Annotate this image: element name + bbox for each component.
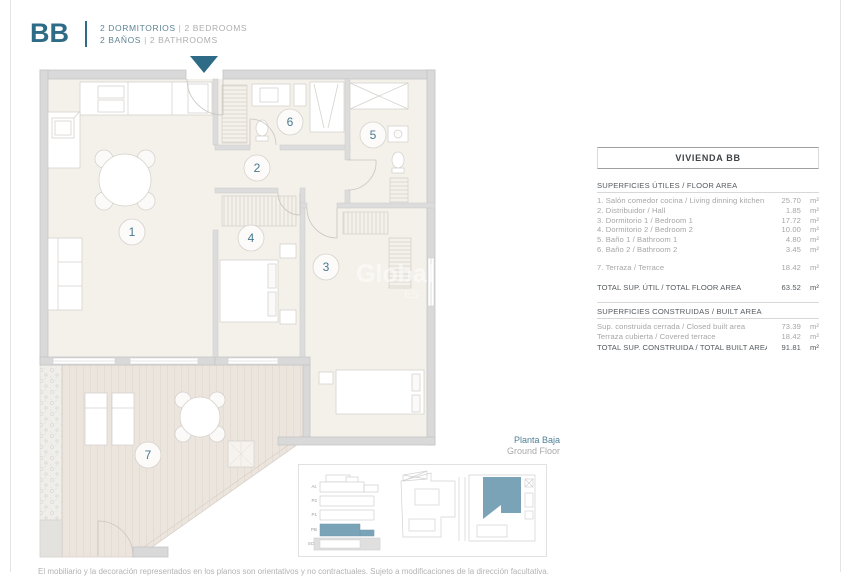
unit-code: BB — [30, 18, 69, 49]
dining-table — [95, 150, 155, 210]
toilet — [392, 152, 404, 168]
table-row: 1. Salón comedor cocina / Living dinning… — [597, 196, 819, 206]
svg-text:P2: P2 — [311, 498, 317, 503]
highlighted-level — [320, 524, 374, 536]
terrace-shrub — [228, 441, 254, 467]
bedroom1-wardrobe-top — [343, 212, 388, 234]
room-circle-6: 6 — [277, 109, 303, 135]
svg-text:2: 2 — [254, 161, 261, 175]
page-border-left — [10, 0, 11, 572]
site-plan-diagram — [397, 467, 541, 551]
floor-label: Planta Baja Ground Floor — [420, 435, 560, 457]
bathrooms-line: 2 BAÑOS|2 BATHROOMS — [100, 34, 247, 46]
kitchen-sink — [48, 111, 80, 168]
entrance-arrow-icon — [190, 56, 218, 73]
section-slabs — [320, 475, 378, 520]
bedroom2-wardrobe — [222, 196, 296, 226]
table-row: Sup. construida cerrada / Closed built a… — [597, 322, 819, 332]
svg-text:4: 4 — [248, 231, 255, 245]
watermark-text: Global — [356, 260, 434, 288]
room-circle-3: 3 — [313, 254, 339, 280]
section-header: SUPERFICIES ÚTILES / FLOOR AREA — [597, 181, 819, 193]
table-row: 2. Distribuidor / Hall1.85m² — [597, 206, 819, 216]
page-border-right — [840, 0, 841, 572]
header: BB 2 DORMITORIOS|2 BEDROOMS 2 BAÑOS|2 BA… — [30, 18, 247, 49]
svg-text:5: 5 — [370, 128, 377, 142]
svg-text:1: 1 — [129, 225, 136, 239]
building-section-diagram: At. P2 P1 PB SOT — [304, 467, 394, 553]
bedrooms-line: 2 DORMITORIOS|2 BEDROOMS — [100, 22, 247, 34]
header-divider — [85, 21, 87, 47]
table-row: 5. Baño 1 / Bathroom 14.80m² — [597, 235, 819, 245]
toilet — [256, 120, 268, 136]
svg-text:PB: PB — [311, 527, 317, 532]
built-area-section: SUPERFICIES CONSTRUIDAS / BUILT AREA Sup… — [597, 302, 819, 352]
total-built-area-row: TOTAL SUP. CONSTRUIDA / TOTAL BUILT AREA… — [597, 343, 819, 353]
watermark-text-2: ES — [404, 289, 419, 301]
table-row: 6. Baño 2 / Bathroom 23.45m² — [597, 245, 819, 255]
table-row: 3. Dormitorio 1 / Bedroom 117.72m² — [597, 216, 819, 226]
svg-text:3: 3 — [323, 260, 330, 274]
floor-area-section: SUPERFICIES ÚTILES / FLOOR AREA 1. Salón… — [597, 181, 819, 292]
total-floor-area-row: TOTAL SUP. ÚTIL / TOTAL FLOOR AREA63.52m… — [597, 283, 819, 293]
planter-box — [40, 520, 62, 557]
key-diagrams-box: At. P2 P1 PB SOT — [298, 464, 547, 557]
table-row: 7. Terraza / Terrace18.42m² — [597, 263, 819, 273]
floor-label-en: Ground Floor — [420, 446, 560, 457]
svg-text:7: 7 — [145, 448, 152, 462]
table-row: 4. Dormitorio 2 / Bedroom 210.00m² — [597, 225, 819, 235]
section-header: SUPERFICIES CONSTRUIDAS / BUILT AREA — [597, 307, 819, 319]
room-circle-7: 7 — [135, 442, 161, 468]
header-lines: 2 DORMITORIOS|2 BEDROOMS 2 BAÑOS|2 BATHR… — [100, 22, 247, 46]
room-circle-4: 4 — [238, 225, 264, 251]
section-level-labels: At. P2 P1 PB SOT — [308, 484, 318, 546]
terrace — [40, 365, 308, 557]
areas-title: VIVIENDA BB — [597, 147, 819, 169]
svg-text:P1: P1 — [311, 512, 317, 517]
room-circle-1: 1 — [119, 219, 145, 245]
floor-label-es: Planta Baja — [420, 435, 560, 446]
table-row: Terraza cubierta / Covered terrace18.42m… — [597, 332, 819, 342]
hall-wardrobe — [222, 85, 247, 143]
terrace-table — [175, 392, 225, 442]
sofa — [48, 238, 82, 310]
svg-text:At.: At. — [311, 484, 317, 489]
svg-text:6: 6 — [287, 115, 294, 129]
highlighted-unit — [483, 477, 521, 519]
room-circle-5: 5 — [360, 122, 386, 148]
areas-table: VIVIENDA BB SUPERFICIES ÚTILES / FLOOR A… — [597, 147, 819, 353]
section-base — [314, 538, 380, 550]
room-circle-2: 2 — [244, 155, 270, 181]
